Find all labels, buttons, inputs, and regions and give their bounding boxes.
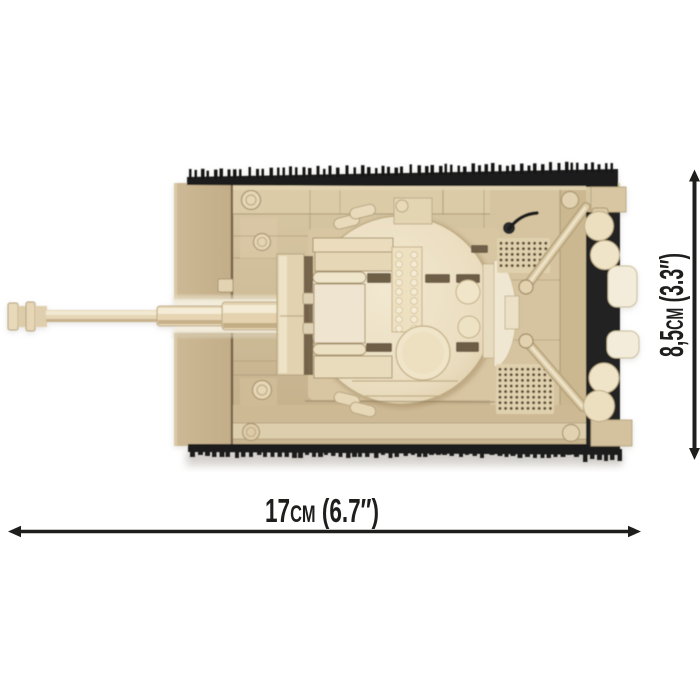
svg-text:17CM (6.7″): 17CM (6.7″) — [265, 492, 379, 529]
svg-text:8,5CM (3.3″): 8,5CM (3.3″) — [653, 253, 690, 357]
